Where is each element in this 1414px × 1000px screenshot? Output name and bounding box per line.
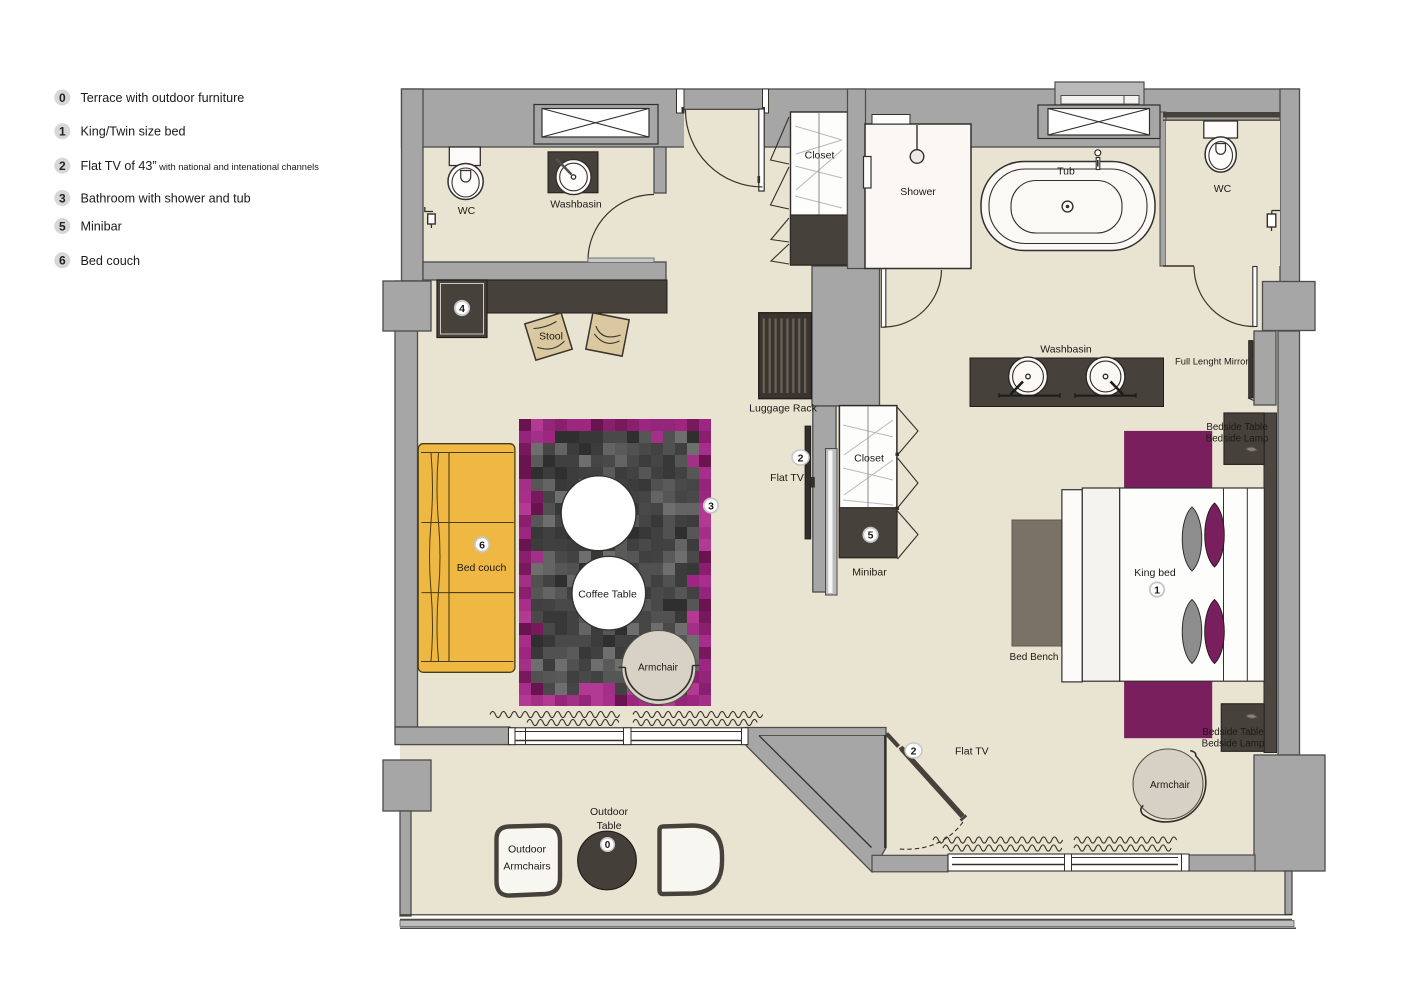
svg-text:Flat TV of 43” with national a: Flat TV of 43” with national and intenat… [81, 159, 320, 173]
svg-text:1: 1 [59, 125, 66, 139]
svg-text:Closet: Closet [854, 453, 884, 465]
svg-text:Luggage Rack: Luggage Rack [749, 403, 817, 415]
svg-text:5: 5 [868, 530, 874, 542]
svg-text:Terrace with outdoor furniture: Terrace with outdoor furniture [81, 91, 245, 105]
svg-text:Bedside Lamp: Bedside Lamp [1202, 739, 1265, 750]
svg-text:Washbasin: Washbasin [550, 199, 602, 211]
svg-text:WC: WC [458, 205, 476, 217]
svg-text:Armchair: Armchair [1150, 780, 1191, 791]
svg-text:6: 6 [59, 254, 66, 268]
svg-text:2: 2 [911, 745, 917, 757]
svg-text:Bed couch: Bed couch [81, 254, 141, 268]
svg-text:Minibar: Minibar [852, 567, 887, 579]
svg-text:Stool: Stool [539, 331, 563, 343]
svg-text:0: 0 [59, 91, 66, 105]
svg-text:Washbasin: Washbasin [1040, 344, 1092, 356]
svg-text:Bed couch: Bed couch [457, 562, 507, 574]
svg-text:4: 4 [459, 303, 465, 315]
svg-text:0: 0 [605, 840, 611, 851]
svg-text:Bathroom with shower and tub: Bathroom with shower and tub [81, 192, 251, 206]
svg-text:Bed Bench: Bed Bench [1010, 652, 1059, 663]
svg-text:Tub: Tub [1057, 166, 1075, 178]
svg-text:Flat TV: Flat TV [770, 472, 804, 484]
svg-text:Outdoor: Outdoor [508, 844, 546, 856]
svg-text:Shower: Shower [900, 186, 936, 198]
svg-text:Armchair: Armchair [638, 663, 679, 674]
svg-text:2: 2 [798, 452, 804, 464]
svg-text:Outdoor: Outdoor [590, 806, 628, 818]
svg-text:3: 3 [708, 500, 714, 512]
svg-text:Bedside Lamp: Bedside Lamp [1206, 434, 1269, 445]
svg-text:Armchairs: Armchairs [503, 861, 550, 873]
svg-text:6: 6 [479, 539, 485, 551]
svg-text:Table: Table [596, 820, 621, 832]
svg-text:Flat TV: Flat TV [955, 746, 989, 758]
svg-text:Bedside Table: Bedside Table [1206, 422, 1268, 433]
svg-text:King bed: King bed [1134, 567, 1176, 579]
svg-text:3: 3 [59, 191, 66, 205]
svg-text:Full Lenght Mirror: Full Lenght Mirror [1175, 356, 1248, 367]
svg-text:2: 2 [59, 159, 66, 173]
svg-text:Coffee Table: Coffee Table [578, 589, 637, 601]
svg-text:Bedside Table: Bedside Table [1202, 727, 1264, 738]
svg-text:5: 5 [59, 219, 66, 233]
svg-text:Closet: Closet [805, 150, 835, 162]
svg-text:1: 1 [1154, 584, 1160, 596]
svg-text:Minibar: Minibar [81, 220, 122, 234]
svg-text:King/Twin size bed: King/Twin size bed [81, 125, 186, 139]
svg-text:WC: WC [1214, 183, 1232, 195]
